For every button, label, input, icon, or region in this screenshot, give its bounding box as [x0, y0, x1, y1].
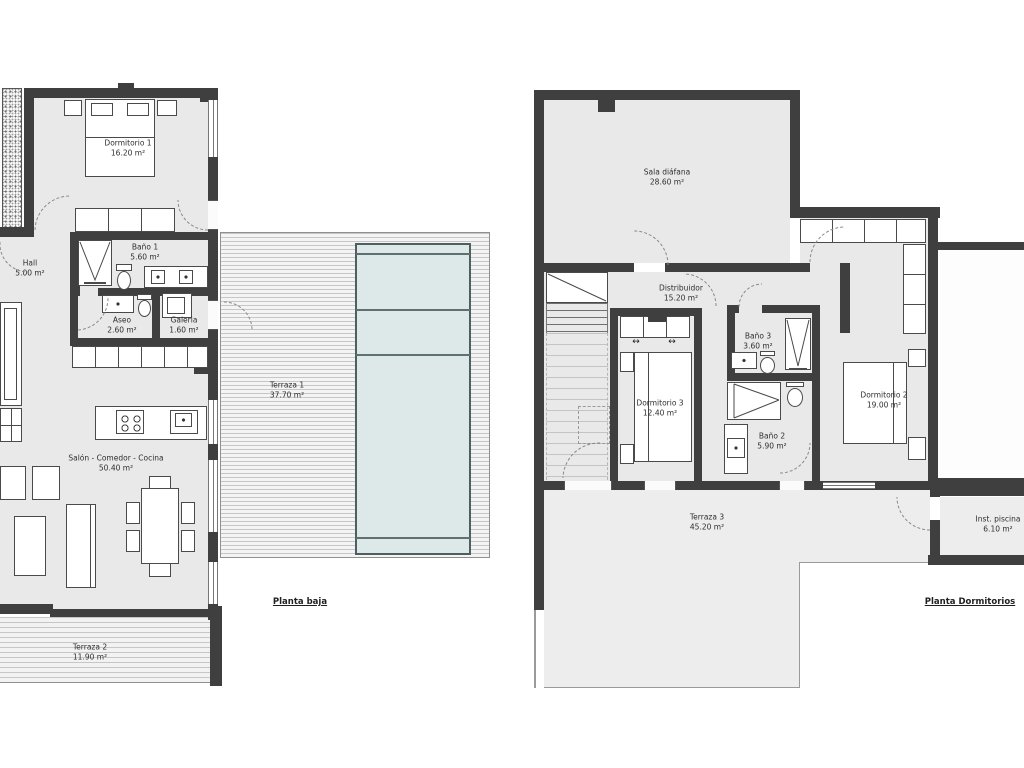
wall-segment: [208, 444, 218, 460]
gravel-texture: [2, 88, 22, 228]
room-label-hall: Hall5.00 m²: [15, 258, 44, 278]
terrace-edge: [534, 610, 536, 688]
chair: [181, 530, 195, 552]
wall-segment: [70, 288, 78, 296]
wall-stub: [792, 263, 810, 272]
pool-step-line: [356, 537, 470, 539]
chair: [149, 563, 171, 577]
sliding-door-arrow-icon: ↔: [668, 337, 676, 347]
door-opening: [779, 481, 805, 490]
door-opening: [564, 481, 612, 490]
closet-divider: [903, 274, 926, 275]
room-label-dormitorio-1: Dormitorio 116.20 m²: [104, 138, 151, 158]
dining-table: [141, 488, 179, 564]
wall-segment: [70, 338, 210, 346]
wall-stub: [598, 100, 615, 112]
wall-pillar: [210, 606, 222, 686]
washing-machine-drum: [167, 297, 185, 314]
chair: [126, 530, 140, 552]
wall-segment: [694, 308, 702, 481]
wall-segment: [24, 92, 34, 237]
window: [208, 400, 218, 444]
terrace-edge: [799, 562, 930, 563]
wall-segment: [208, 532, 218, 562]
window: [823, 482, 875, 489]
wall-segment: [70, 232, 210, 240]
closet-divider: [95, 346, 96, 368]
wall-segment: [544, 263, 634, 272]
wall-segment: [928, 555, 1024, 565]
closet-divider: [118, 346, 119, 368]
room-label-salon: Salón - Comedor - Cocina50.40 m²: [68, 453, 163, 473]
room-label-sala-diafana: Sala diáfana28.60 m²: [644, 167, 690, 187]
room-label-distribuidor: Distribuidor15.20 m²: [659, 283, 703, 303]
wall-segment: [0, 227, 24, 237]
nightstand: [908, 349, 926, 367]
door-opening: [644, 481, 676, 490]
door-opening: [208, 200, 218, 230]
wall-segment: [208, 157, 218, 200]
coffee-table: [14, 516, 46, 576]
wall-segment: [208, 88, 218, 100]
terrace-edge: [799, 562, 800, 688]
room-label-aseo: Aseo2.60 m²: [107, 315, 136, 335]
wall-stub: [194, 368, 208, 374]
stove: [116, 410, 144, 434]
toilet-tank: [116, 264, 132, 271]
wall-segment: [152, 288, 160, 342]
floor-terraza-3-lower: [544, 562, 800, 688]
floor-terraza-3: [544, 490, 930, 562]
nightstand: [157, 100, 177, 116]
room-label-terraza-3: Terraza 345.20 m²: [690, 512, 724, 532]
nightstand: [620, 444, 634, 464]
chair: [126, 502, 140, 524]
pool: [355, 243, 471, 555]
sink: [731, 352, 757, 369]
terrace-edge: [544, 687, 800, 688]
armchair: [0, 466, 26, 500]
room-label-bano-3: Baño 33.60 m²: [743, 331, 772, 351]
wall-segment: [0, 604, 53, 614]
closet-divider: [864, 219, 865, 243]
sliding-door-arrow-icon: ↔: [632, 337, 640, 347]
toilet: [787, 388, 803, 407]
closet-divider: [903, 304, 926, 305]
sofa-backrest-line: [90, 505, 91, 587]
wall-segment: [930, 487, 940, 497]
toilet: [760, 357, 775, 374]
wardrobe: [75, 208, 175, 232]
room-label-inst-piscina: Inst. piscina6.10 m²: [976, 514, 1021, 534]
wall-segment: [812, 305, 820, 481]
wall-segment: [940, 487, 1024, 496]
wall-segment: [665, 263, 792, 272]
wall-segment: [534, 90, 544, 610]
closet-divider: [896, 219, 897, 243]
bathtub: [727, 382, 781, 420]
wall-segment: [928, 207, 938, 487]
closet-divider: [832, 219, 833, 243]
toilet-tank: [786, 382, 804, 387]
stairs-landing: [546, 272, 608, 303]
cabinet-divider: [0, 425, 22, 426]
stairs-treads: [546, 303, 608, 333]
room-label-terraza-1: Terraza 137.70 m²: [270, 380, 304, 400]
plan-title-planta-baja: Planta baja: [273, 597, 327, 607]
armchair: [32, 466, 60, 500]
toilet: [138, 300, 151, 317]
wall-stub: [648, 310, 666, 322]
wardrobe-divider: [141, 208, 142, 232]
closet: [903, 244, 926, 334]
plan-title-planta-dormitorios: Planta Dormitorios: [925, 597, 1015, 607]
nightstand: [64, 100, 82, 116]
wall-segment: [928, 478, 1024, 487]
room-label-bano-1: Baño 15.60 m²: [130, 242, 159, 262]
floorplan-canvas: Dormitorio 116.20 m² Hall5.00 m² Baño 15…: [0, 0, 1024, 768]
kitchen-sink: [175, 413, 192, 427]
pillow: [91, 103, 113, 116]
chair: [181, 502, 195, 524]
door-opening: [208, 300, 218, 330]
window: [208, 100, 218, 157]
wall-stub: [118, 83, 134, 90]
chair: [149, 476, 171, 489]
toilet-tank: [760, 351, 775, 356]
wall-segment: [534, 90, 800, 100]
closet-divider: [164, 346, 165, 368]
wall-segment: [938, 242, 1024, 250]
nightstand: [620, 352, 634, 372]
sink: [727, 438, 745, 458]
pool-step-line: [356, 253, 470, 255]
stairs-void-outline: [578, 406, 610, 444]
shower: [78, 240, 112, 286]
sofa: [66, 504, 96, 588]
room-label-dormitorio-3: Dormitorio 312.40 m²: [636, 398, 683, 418]
shower: [785, 318, 811, 370]
pool-lane-line: [356, 309, 470, 311]
closet: [800, 219, 926, 243]
room-label-galeria: Galeria1.60 m²: [169, 315, 198, 335]
room-label-bano-2: Baño 25.90 m²: [757, 431, 786, 451]
wardrobe-divider: [643, 316, 644, 338]
wall-segment: [840, 263, 850, 333]
window: [208, 460, 218, 532]
kitchen-counter-inner: [4, 308, 17, 400]
closet-divider: [141, 346, 142, 368]
room-label-dormitorio-2: Dormitorio 219.00 m²: [860, 390, 907, 410]
wall-segment: [727, 373, 820, 381]
wall-segment: [790, 90, 800, 218]
sink: [179, 270, 193, 284]
room-label-terraza-2: Terraza 211.90 m²: [73, 642, 107, 662]
pillow: [127, 103, 149, 116]
sink: [151, 270, 165, 284]
pool-lane-line: [356, 354, 470, 356]
wall-segment: [790, 207, 940, 218]
sink: [102, 295, 134, 313]
window: [208, 562, 218, 604]
floor-open-roof: [938, 250, 1024, 478]
wall-segment: [610, 308, 618, 481]
nightstand: [908, 437, 926, 460]
toilet: [117, 271, 131, 290]
wardrobe-divider: [666, 316, 667, 338]
closet-divider: [187, 346, 188, 368]
wardrobe-divider: [108, 208, 109, 232]
wall-segment: [50, 609, 212, 617]
